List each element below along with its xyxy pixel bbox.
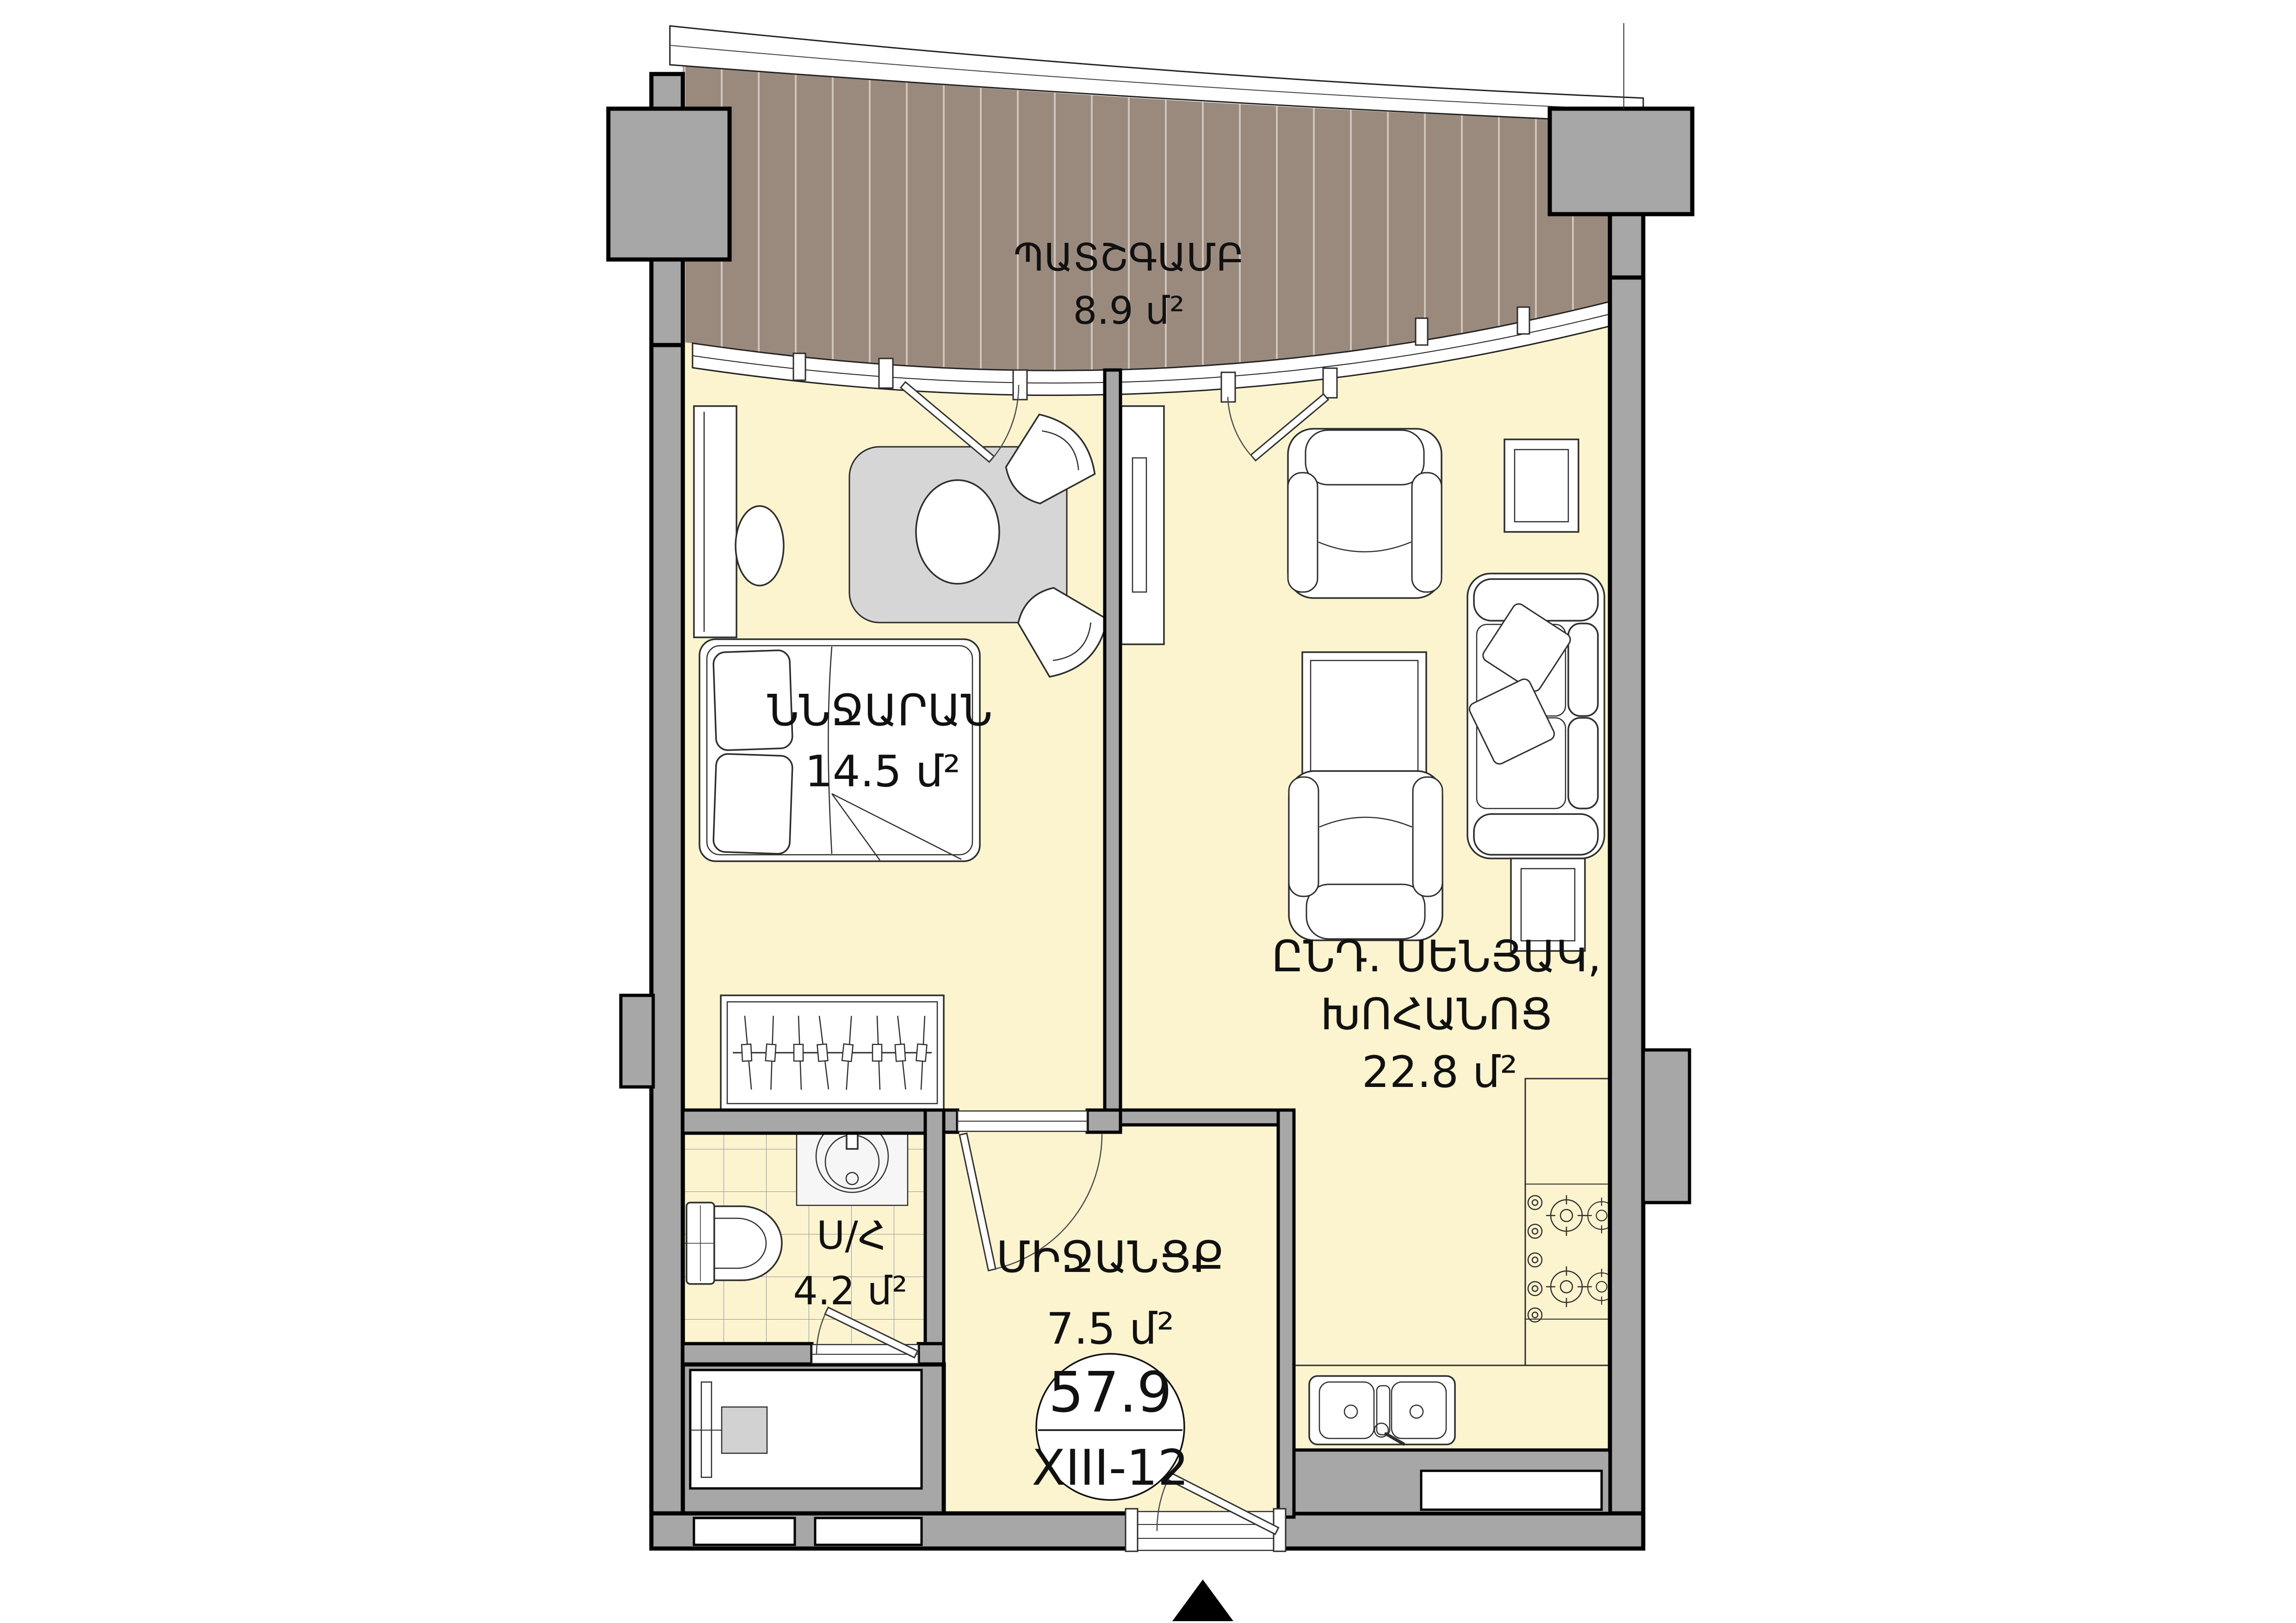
balcony-area-label: 8.9 մ² bbox=[1073, 289, 1184, 333]
wall-right bbox=[1610, 278, 1643, 1549]
dresser bbox=[694, 406, 736, 637]
wall-left bbox=[651, 259, 683, 1549]
floor-plan-page: ՊԱՏՇԳԱՄԲ 8.9 մ² ՆՆՋԱՐԱՆ 14.5 մ² ԸՆԴ. ՍԵՆ… bbox=[0, 0, 2296, 1623]
wall-living-corridor bbox=[1120, 1110, 1278, 1125]
wall-bottom-right bbox=[1278, 1513, 1643, 1549]
kitchen-sink bbox=[1309, 1376, 1455, 1444]
wall-frame bbox=[1504, 439, 1578, 532]
wall-niche bbox=[815, 1518, 922, 1545]
bathroom-area-label: 4.2 մ² bbox=[793, 1268, 907, 1314]
bathroom-label: Ս/Հ bbox=[817, 1213, 886, 1258]
wall-niche bbox=[1421, 1471, 1602, 1510]
bedroom-label: ՆՆՋԱՐԱՆ bbox=[767, 685, 992, 736]
armchair bbox=[1289, 771, 1442, 940]
wall-bedroom-door-jamb bbox=[944, 1110, 958, 1132]
pillow bbox=[713, 753, 792, 854]
unit-number: XIII-12 bbox=[1032, 1439, 1189, 1496]
wall-bathroom-right bbox=[925, 1110, 944, 1344]
sofa-back bbox=[1568, 623, 1598, 716]
sofa bbox=[1467, 574, 1604, 858]
wall-bathroom-bottom bbox=[683, 1344, 812, 1364]
wardrobe bbox=[721, 995, 944, 1110]
living-label-line1: ԸՆԴ. ՍԵՆՅԱԿ, bbox=[1271, 932, 1601, 982]
pillar-right bbox=[1550, 109, 1692, 214]
wall-bedroom-corridor bbox=[1087, 1110, 1120, 1132]
north-arrow-icon bbox=[1172, 1580, 1233, 1621]
balcony-label: ՊԱՏՇԳԱՄԲ bbox=[1014, 236, 1244, 280]
wall-right-pier bbox=[1643, 1050, 1690, 1203]
wall-bedroom-living bbox=[1105, 370, 1120, 1131]
wall-bathroom-top bbox=[683, 1110, 925, 1133]
sofa-armrest bbox=[1474, 814, 1598, 855]
bedroom-area-label: 14.5 մ² bbox=[805, 747, 960, 797]
corridor-area-label: 7.5 մ² bbox=[1046, 1304, 1175, 1354]
living-area-label: 22.8 մ² bbox=[1362, 1047, 1517, 1098]
tv-cabinet bbox=[1121, 406, 1164, 644]
round-table bbox=[916, 480, 999, 584]
window-mullion bbox=[1517, 307, 1529, 334]
wall-left-pier bbox=[621, 995, 653, 1087]
unit-total-area: 57.9 bbox=[1048, 1361, 1172, 1425]
sofa-back bbox=[1568, 718, 1598, 808]
floor-plan-svg: ՊԱՏՇԳԱՄԲ 8.9 մ² ՆՆՋԱՐԱՆ 14.5 մ² ԸՆԴ. ՍԵՆ… bbox=[0, 0, 2296, 1623]
wall-niche bbox=[694, 1518, 795, 1545]
armchair bbox=[1288, 429, 1442, 598]
pillar-left bbox=[608, 109, 730, 259]
wall-kitchen-corridor bbox=[1278, 1110, 1294, 1517]
utility-unit bbox=[722, 1407, 767, 1453]
toilet bbox=[672, 1203, 782, 1284]
corridor-label: ՄԻՋԱՆՑՔ bbox=[996, 1232, 1224, 1283]
window-mullion bbox=[793, 353, 805, 380]
unit-badge: 57.9 XIII-12 bbox=[1032, 1354, 1189, 1500]
window-mullion bbox=[1416, 318, 1428, 345]
living-label-line2: ԽՈՀԱՆՈՑ bbox=[1320, 989, 1553, 1040]
wall-bathroom-bottom bbox=[918, 1344, 944, 1364]
stool bbox=[736, 506, 784, 586]
